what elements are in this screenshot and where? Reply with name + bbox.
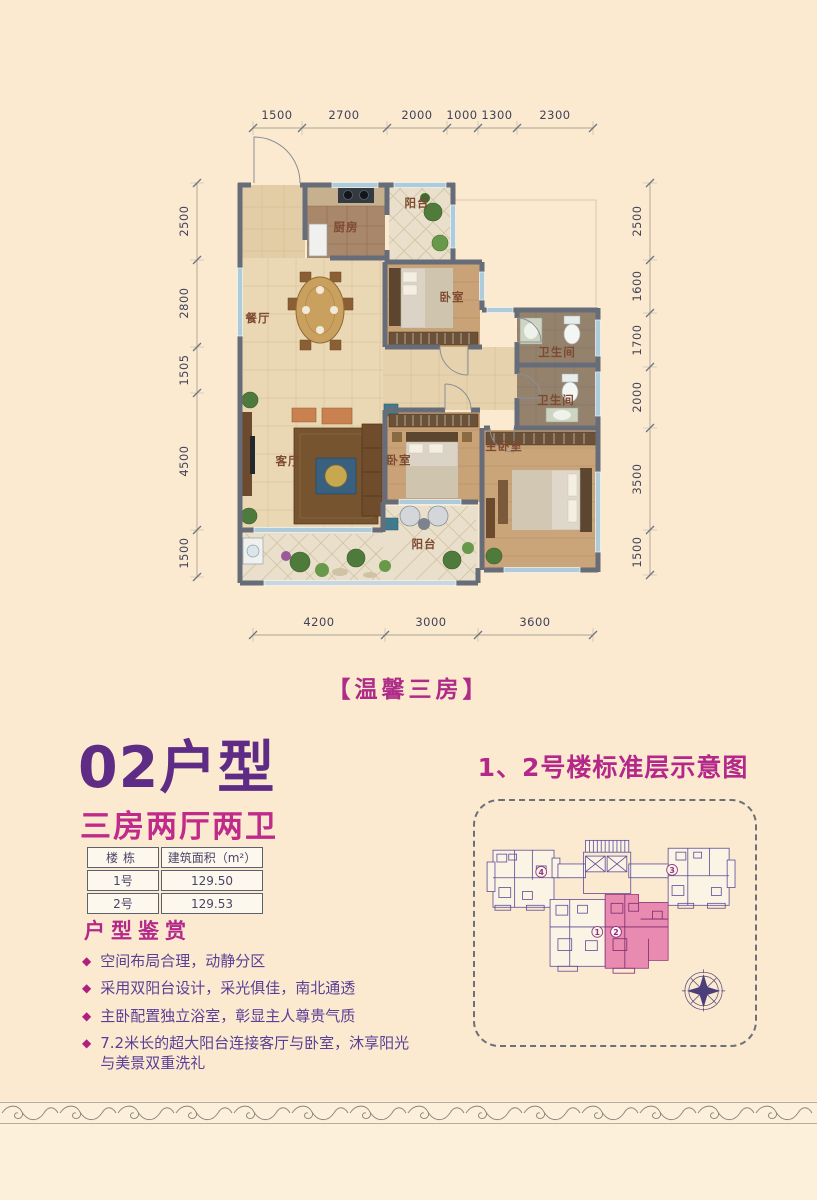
standard-floor-box: 4 3 1 2 — [473, 799, 757, 1047]
feature-text: 采用双阳台设计，采光俱佳，南北通透 — [100, 978, 355, 998]
room-label-living: 客厅 — [275, 454, 301, 468]
feature-item: ◆ 空间布局合理，动静分区 — [82, 951, 420, 971]
building-right — [668, 848, 735, 908]
standard-floor-diagram: 4 3 1 2 — [475, 801, 755, 1045]
svg-text:1500: 1500 — [630, 536, 644, 567]
diamond-bullet-icon: ◆ — [82, 1033, 91, 1074]
svg-text:1700: 1700 — [630, 324, 644, 355]
svg-text:2800: 2800 — [177, 287, 191, 318]
feature-text: 7.2米长的超大阳台连接客厅与卧室，沐享阳光与美景双重洗礼 — [100, 1033, 420, 1074]
room-label-kitchen: 厨房 — [334, 220, 359, 234]
area-cell: 129.50 — [161, 870, 263, 891]
diamond-bullet-icon: ◆ — [82, 951, 91, 971]
unit-1-badge: 1 — [595, 928, 600, 937]
feature-item: ◆ 采用双阳台设计，采光俱佳，南北通透 — [82, 978, 420, 998]
svg-text:1300: 1300 — [481, 108, 512, 122]
plan-caption: 【温馨三房】 — [0, 670, 817, 704]
building-cell: 1号 — [87, 870, 159, 891]
room-label-balcony-top: 阳台 — [405, 196, 430, 210]
room-label-balcony-bottom: 阳台 — [412, 537, 437, 551]
feature-text: 主卧配置独立浴室，彰显主人尊贵气质 — [100, 1006, 355, 1026]
svg-text:2700: 2700 — [328, 108, 359, 122]
svg-text:3600: 3600 — [519, 615, 550, 629]
room-label-bedroom-b: 卧室 — [387, 453, 412, 467]
standard-floor-title: 1、2号楼标准层示意图 — [462, 748, 764, 784]
table-row: 2号 129.53 — [87, 893, 263, 914]
building-middle — [550, 894, 668, 973]
diamond-bullet-icon: ◆ — [82, 978, 91, 998]
compass-icon — [682, 969, 725, 1011]
table-header-building: 楼栋 — [87, 847, 159, 868]
feature-text: 空间布局合理，动静分区 — [100, 951, 265, 971]
room-label-bath-2: 卫生间 — [537, 393, 575, 407]
svg-text:2500: 2500 — [630, 205, 644, 236]
svg-text:1500: 1500 — [177, 537, 191, 568]
svg-text:1000: 1000 — [446, 108, 477, 122]
building-cell: 2号 — [87, 893, 159, 914]
svg-text:4500: 4500 — [177, 445, 191, 476]
feature-item: ◆ 7.2米长的超大阳台连接客厅与卧室，沐享阳光与美景双重洗礼 — [82, 1033, 420, 1074]
svg-text:1500: 1500 — [261, 108, 292, 122]
room-label-bedroom-a: 卧室 — [440, 290, 465, 304]
diamond-bullet-icon: ◆ — [82, 1006, 91, 1026]
footer-area — [0, 1125, 817, 1200]
svg-text:3000: 3000 — [415, 615, 446, 629]
unit-3-badge: 3 — [669, 866, 674, 875]
table-row: 1号 129.50 — [87, 870, 263, 891]
area-cell: 129.53 — [161, 893, 263, 914]
room-label-bath-1: 卫生间 — [538, 345, 576, 359]
svg-text:2300: 2300 — [539, 108, 570, 122]
feature-item: ◆ 主卧配置独立浴室，彰显主人尊贵气质 — [82, 1006, 420, 1026]
unit-4-badge: 4 — [538, 868, 544, 877]
svg-text:2000: 2000 — [401, 108, 432, 122]
unit-2-badge: 2 — [613, 928, 618, 937]
svg-text:1600: 1600 — [630, 270, 644, 301]
svg-text:4200: 4200 — [303, 615, 334, 629]
floor-plan: 厨房 阳台 餐厅 卧室 卫生间 卫生间 客厅 卧室 主卧室 阳台 1500 27… — [160, 100, 680, 645]
room-label-master: 主卧室 — [485, 439, 523, 453]
ornament-band — [0, 1101, 817, 1125]
features-list: ◆ 空间布局合理，动静分区 ◆ 采用双阳台设计，采光俱佳，南北通透 ◆ 主卧配置… — [82, 951, 420, 1080]
svg-text:2500: 2500 — [177, 205, 191, 236]
room-label-dining: 餐厅 — [245, 311, 271, 325]
features-heading: 户型鉴赏 — [84, 915, 192, 945]
building-left — [487, 850, 560, 910]
unit-type-title: 02户型 — [78, 740, 275, 797]
svg-text:1505: 1505 — [177, 354, 191, 385]
elevator-core — [558, 840, 668, 893]
unit-type-subtitle: 三房两厅两卫 — [80, 812, 278, 843]
table-header-row: 楼栋 建筑面积（m²） — [87, 847, 263, 868]
table-header-area: 建筑面积（m²） — [161, 847, 263, 868]
brochure-page: 厨房 阳台 餐厅 卧室 卫生间 卫生间 客厅 卧室 主卧室 阳台 1500 27… — [0, 0, 817, 1200]
svg-text:3500: 3500 — [630, 463, 644, 494]
area-table: 楼栋 建筑面积（m²） 1号 129.50 2号 129.53 — [85, 845, 265, 916]
svg-text:2000: 2000 — [630, 381, 644, 412]
